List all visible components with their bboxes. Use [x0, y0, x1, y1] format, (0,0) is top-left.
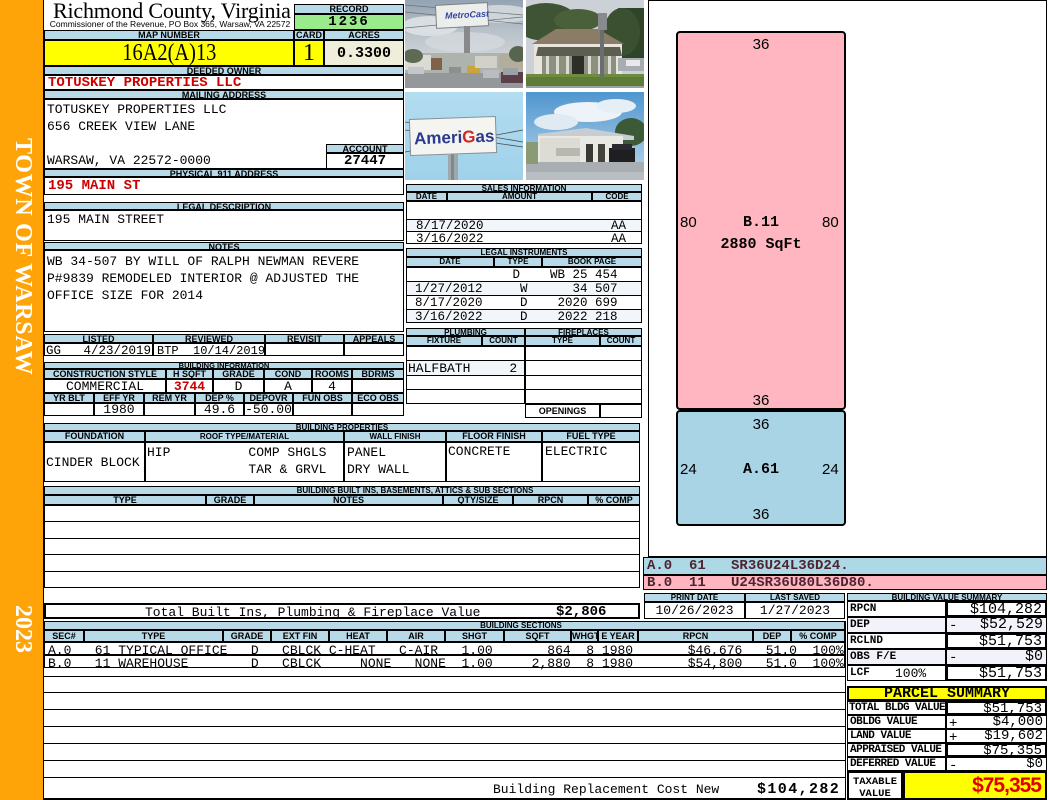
svg-text:AmeriGas: AmeriGas: [414, 127, 495, 149]
